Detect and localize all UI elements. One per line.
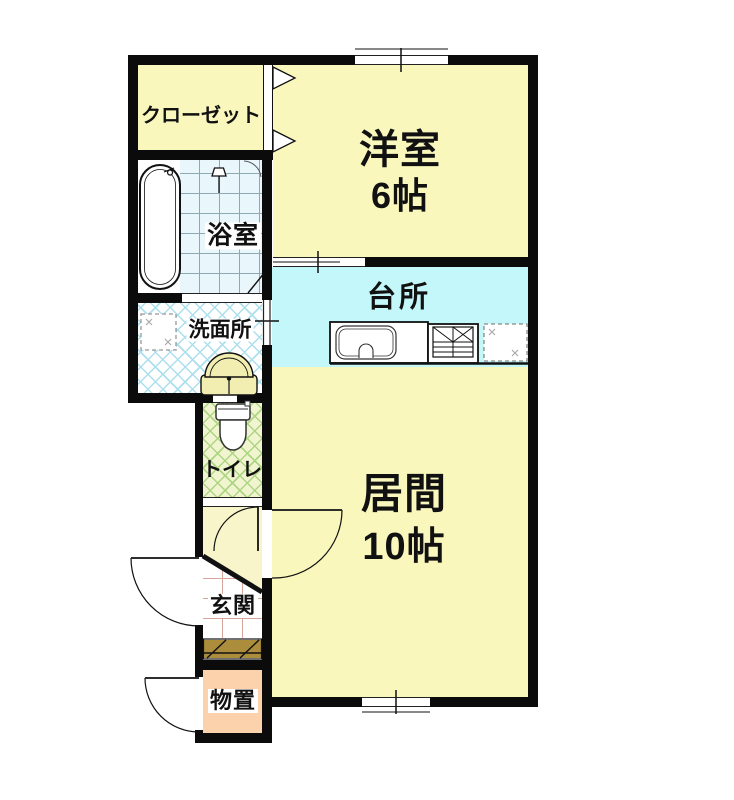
wall-storage-left-a [195, 670, 203, 677]
wash-kitchen-door-frame [264, 300, 271, 345]
entrance-step [203, 638, 262, 660]
wall-top-right [448, 55, 538, 65]
wall-living-bottom-left [272, 697, 362, 707]
toilet-floor [203, 403, 262, 497]
floor-plan: クローゼット 洋室 6帖 浴室 洗面所 台所 トイレ 居間 10帖 玄関 物置 [0, 0, 734, 800]
room-label-bathroom: 浴室 [205, 223, 261, 250]
wall-right [528, 55, 538, 707]
bathtub-inner [145, 170, 176, 285]
wall-closet-bottom [128, 150, 273, 160]
room-size-living: 10帖 [362, 528, 445, 566]
room-label-entrance: 玄関 [208, 594, 258, 618]
wall-storage-left-b [195, 730, 203, 733]
room-label-western: 洋室 [359, 130, 441, 170]
room-label-kitchen: 台所 [367, 284, 431, 313]
opening-westernroom-kitchen [273, 257, 365, 267]
wall-storage-top [195, 660, 272, 670]
wall-mid-b [262, 345, 272, 510]
room-label-storage: 物置 [208, 689, 258, 713]
toilet-hall-door [203, 497, 262, 507]
entrance-door-swing-arc [131, 558, 199, 626]
wall-bath-bottom [128, 293, 182, 303]
room-size-western: 6帖 [371, 178, 429, 214]
bath-faucet-icon [164, 168, 174, 175]
bathtub-icon [140, 165, 180, 289]
washroom-floor [138, 303, 262, 393]
wall-living-bottom-right [430, 697, 538, 707]
wall-top-left [128, 55, 355, 65]
storage-door-swing-arc [145, 678, 199, 732]
wall-mid-a [262, 158, 272, 300]
wall-kitchen-top [365, 257, 528, 267]
room-label-washroom: 洗面所 [187, 319, 254, 342]
room-label-toilet: トイレ [202, 460, 262, 480]
window-top [355, 55, 448, 65]
wall-storage-bottom [195, 733, 272, 743]
wall-left-upper [128, 55, 138, 403]
window-bottom [362, 697, 430, 707]
room-label-closet: クローゼット [141, 106, 261, 126]
closet-bifold-door [263, 65, 273, 150]
room-label-living: 居間 [361, 473, 447, 515]
bathroom-folding-door [182, 293, 262, 303]
toilet-entry-door [213, 393, 237, 403]
hall-floor [203, 507, 262, 557]
